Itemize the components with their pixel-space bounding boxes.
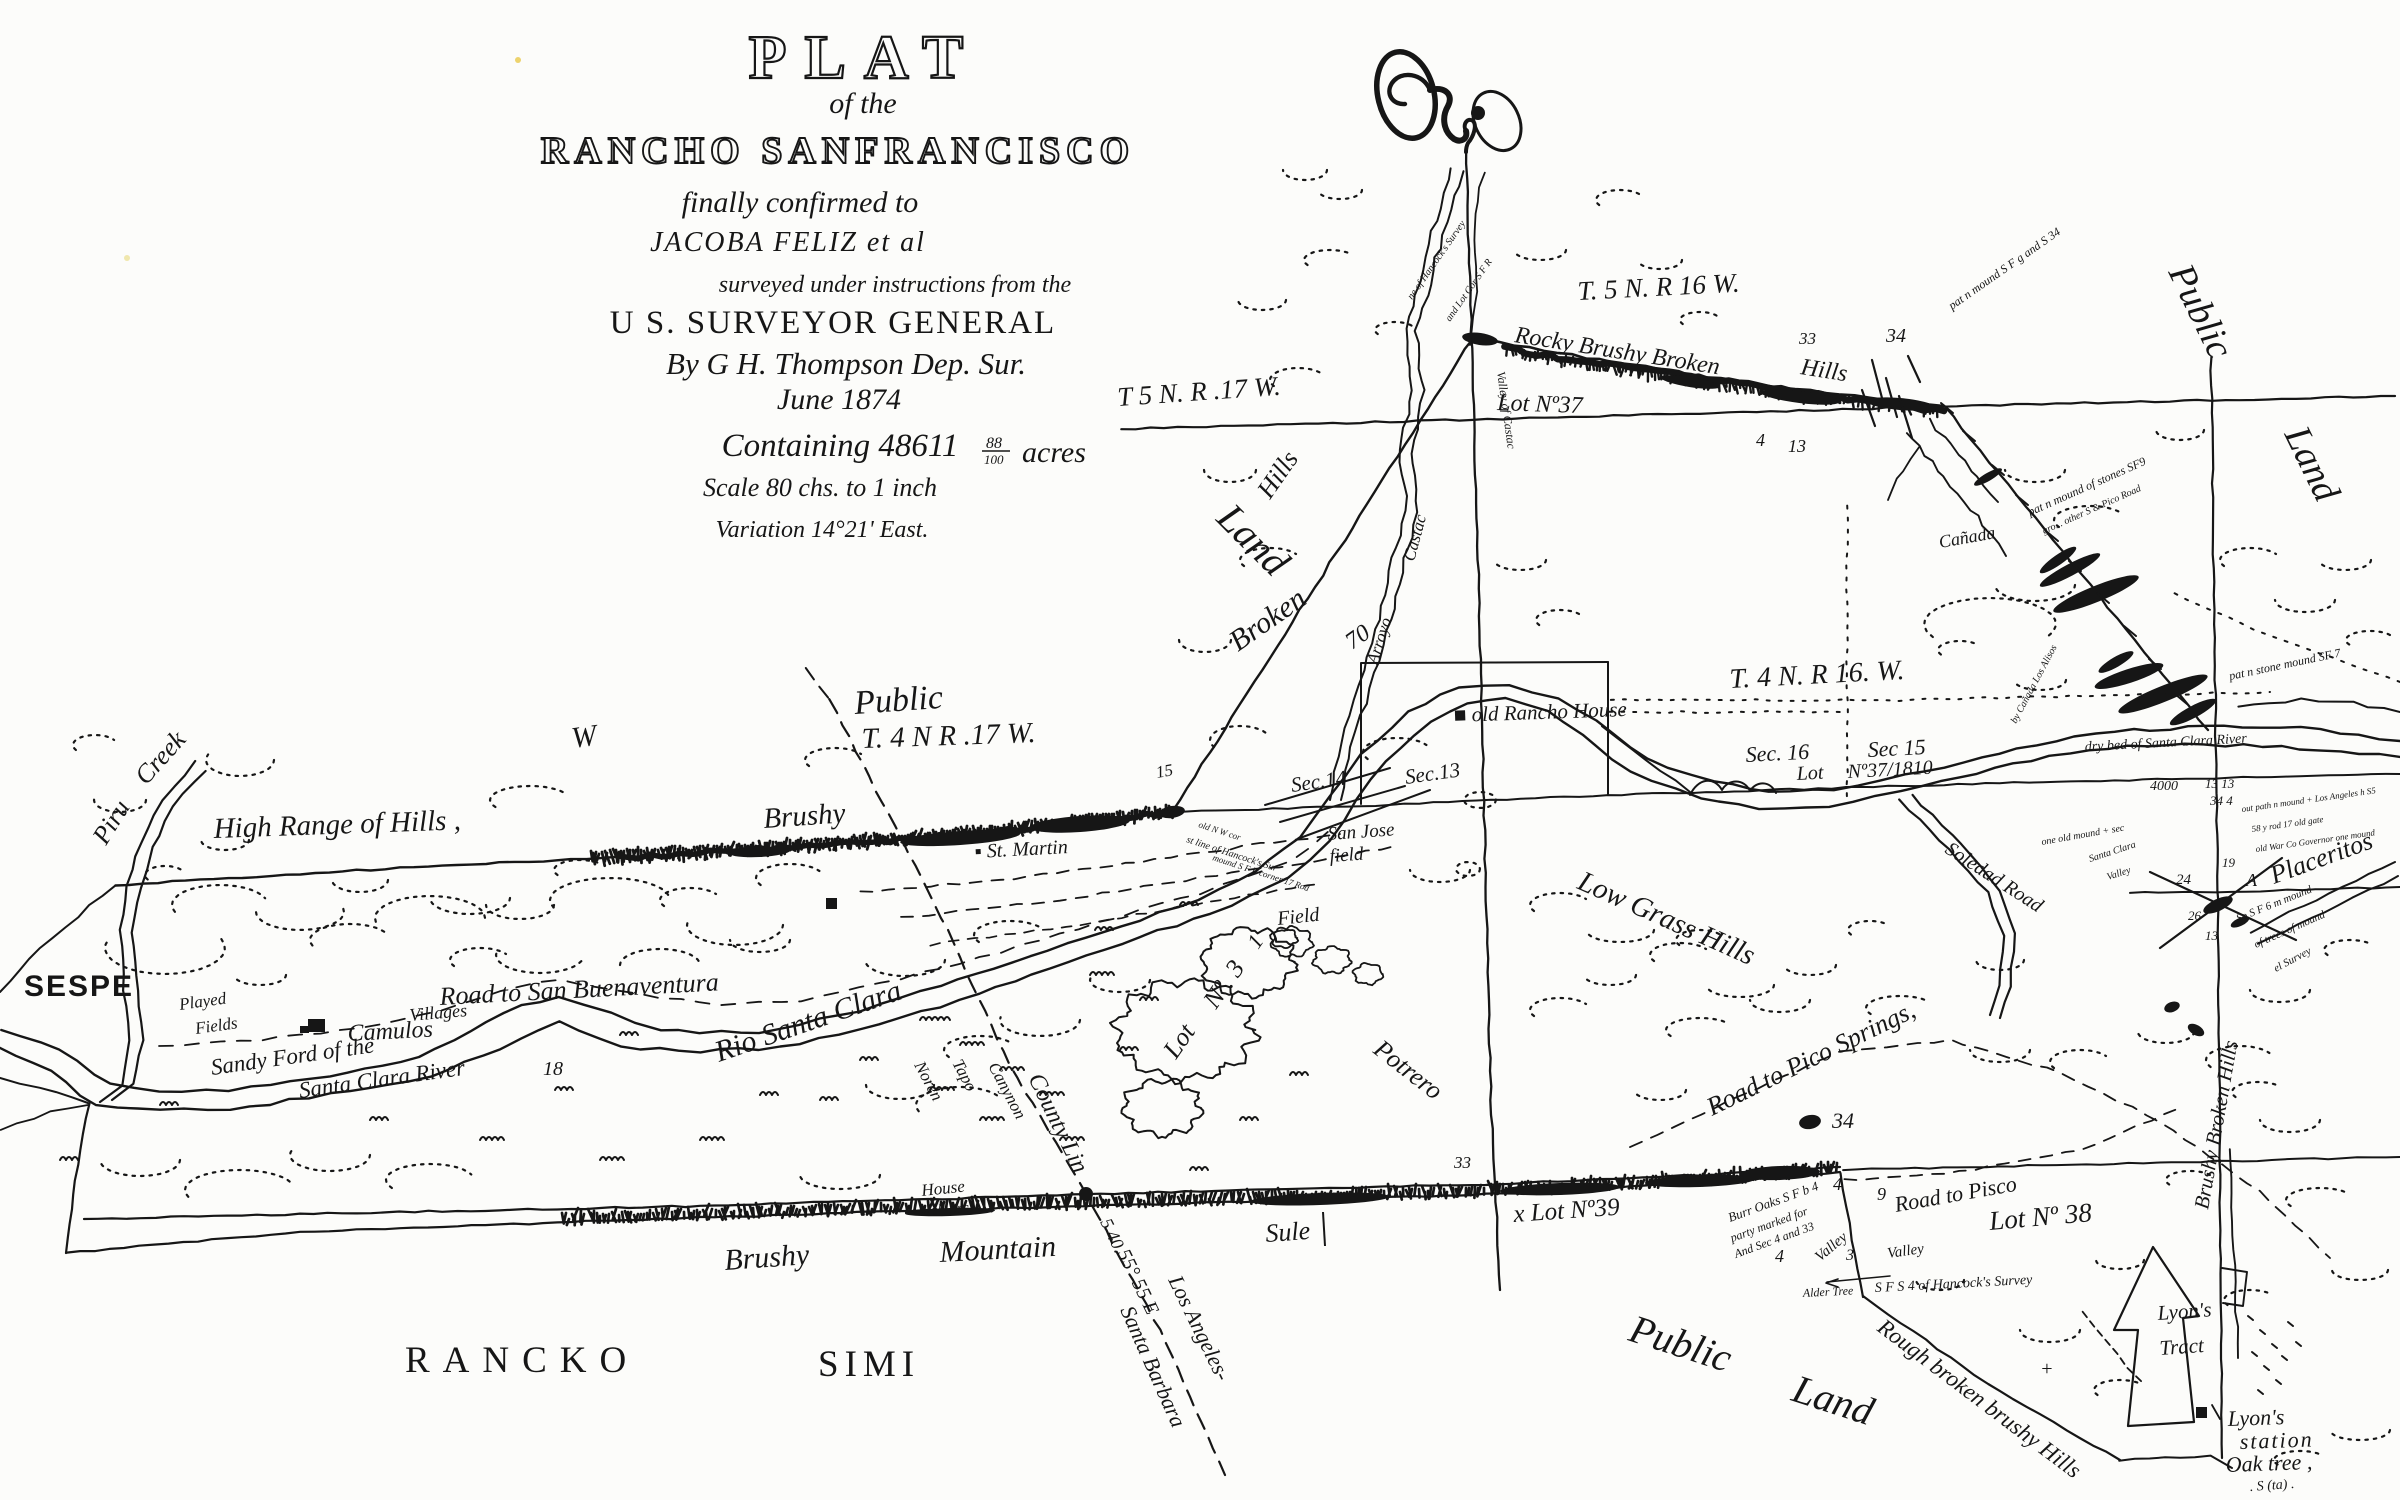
- svg-text:By G H. Thompson Dep. Sur.: By G H. Thompson Dep. Sur.: [666, 346, 1026, 381]
- svg-text:24: 24: [2176, 872, 2192, 888]
- svg-text:Lot: Lot: [1795, 762, 1824, 785]
- svg-text:Public: Public: [852, 679, 944, 722]
- svg-text:4: 4: [1775, 1246, 1784, 1266]
- svg-text:Oak tree ,: Oak tree ,: [2225, 1449, 2312, 1477]
- svg-text:15: 15: [1154, 760, 1174, 782]
- svg-text:34: 34: [1831, 1108, 1854, 1133]
- svg-text:Brushy: Brushy: [762, 797, 846, 835]
- svg-text:4000: 4000: [2150, 779, 2178, 794]
- svg-text:Alder Tree: Alder Tree: [1801, 1283, 1854, 1300]
- svg-text:Containing 48611: Containing 48611: [722, 428, 959, 464]
- svg-text:Mountain: Mountain: [938, 1230, 1057, 1269]
- svg-text:June 1874: June 1874: [777, 383, 901, 416]
- svg-text:. S (ta) .: . S (ta) .: [2249, 1477, 2295, 1495]
- svg-text:Sule: Sule: [1264, 1216, 1311, 1248]
- svg-text:13: 13: [2205, 928, 2219, 943]
- svg-text:surveyed under instructions: surveyed under instructions from the: [719, 272, 1072, 298]
- svg-text:34 4: 34 4: [2209, 793, 2233, 808]
- svg-text:88: 88: [986, 435, 1002, 452]
- svg-text:JACOBA FELIZ et al: JACOBA FELIZ et al: [650, 227, 926, 258]
- svg-text:PLAT: PLAT: [749, 24, 982, 92]
- svg-text:SESPE: SESPE: [24, 970, 134, 1003]
- svg-text:13 13: 13 13: [2205, 776, 2235, 791]
- svg-text:9: 9: [1877, 1184, 1886, 1204]
- svg-text:finally confirmed to: finally confirmed to: [682, 186, 919, 219]
- svg-text:+: +: [2040, 1358, 2054, 1380]
- svg-text:26: 26: [2188, 908, 2202, 923]
- svg-text:Tract: Tract: [2159, 1333, 2206, 1360]
- svg-text:Field: Field: [1275, 904, 1321, 931]
- svg-text:A: A: [2245, 870, 2258, 890]
- svg-text:100: 100: [984, 452, 1004, 467]
- svg-text:Lyon's: Lyon's: [2156, 1297, 2213, 1325]
- svg-text:field: field: [1329, 844, 1365, 867]
- svg-text:Nº37/1810: Nº37/1810: [1846, 757, 1933, 783]
- svg-text:13: 13: [1788, 436, 1806, 456]
- svg-text:34: 34: [1885, 325, 1906, 347]
- svg-text:acres: acres: [1022, 436, 1086, 469]
- svg-text:4: 4: [1833, 1174, 1842, 1194]
- svg-text:33: 33: [1453, 1153, 1471, 1172]
- svg-text:T. 4 N R .17 W.: T. 4 N R .17 W.: [861, 717, 1036, 755]
- svg-text:RANCHO SANFRANCISCO: RANCHO SANFRANCISCO: [541, 130, 1135, 172]
- svg-text:U S. SURVEYOR GENERAL: U S. SURVEYOR GENERAL: [610, 305, 1056, 341]
- svg-text:Scale 80 chs. to 1 inch: Scale 80 chs. to 1 inch: [703, 473, 937, 502]
- svg-text:SIMI: SIMI: [818, 1344, 920, 1385]
- svg-text:RANCKO: RANCKO: [405, 1340, 639, 1381]
- svg-text:Variation 14°21' East.: Variation 14°21' East.: [716, 517, 929, 543]
- svg-text:33: 33: [1798, 329, 1816, 348]
- svg-text:4: 4: [1756, 430, 1765, 450]
- svg-text:18: 18: [543, 1058, 563, 1080]
- svg-text:19: 19: [2222, 855, 2236, 870]
- svg-text:Brushy: Brushy: [723, 1238, 811, 1277]
- svg-text:of the: of the: [829, 87, 897, 120]
- svg-text:3: 3: [1845, 1247, 1854, 1264]
